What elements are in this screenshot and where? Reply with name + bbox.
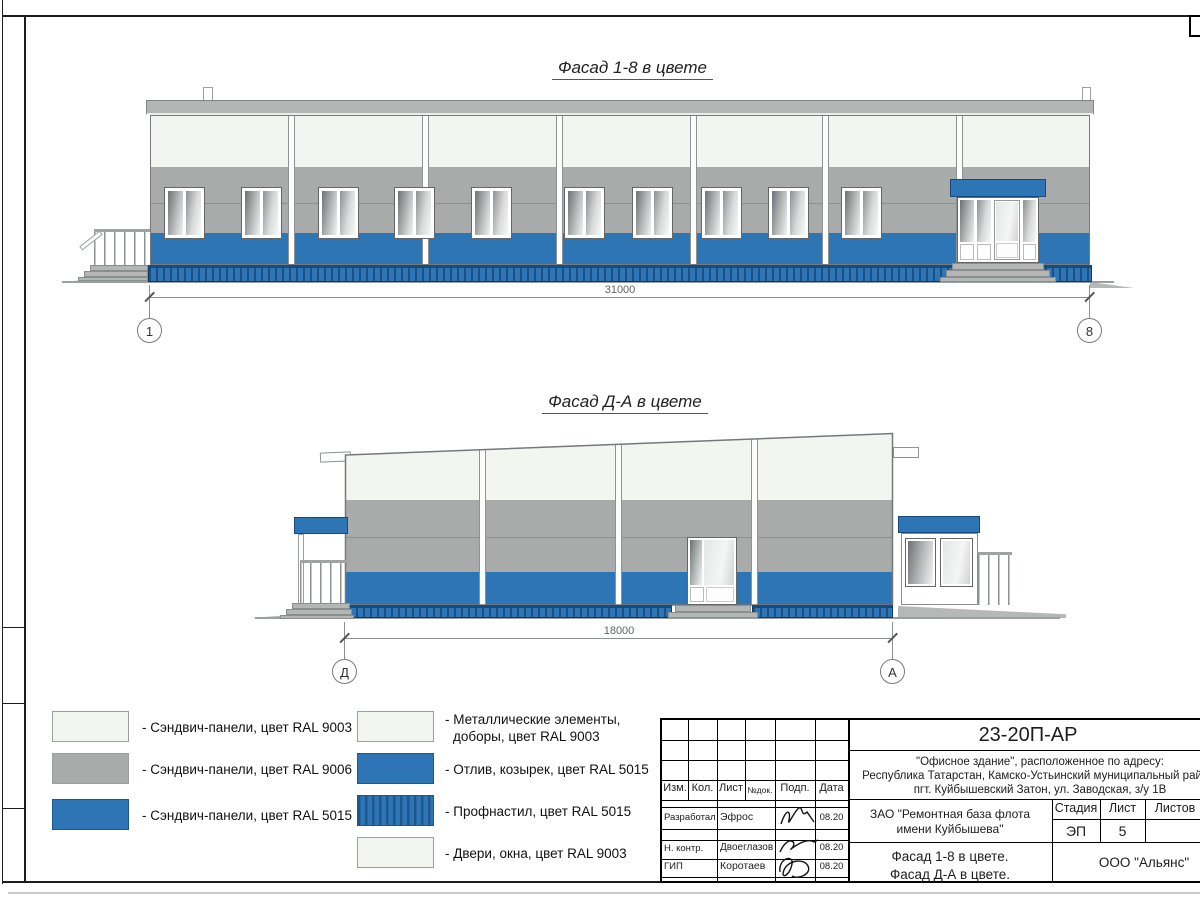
window — [564, 187, 605, 239]
tb-name: Коротаев — [720, 860, 778, 872]
tb-line — [1052, 819, 1200, 820]
frame-top — [2, 15, 1200, 17]
facade-column — [479, 433, 486, 605]
tb-name: Эфрос — [720, 811, 776, 823]
tb-col-ndok: №док. — [745, 785, 775, 795]
swatch-ral9006 — [52, 753, 129, 784]
frame-left — [24, 15, 26, 883]
window — [318, 187, 359, 239]
tb-role: ГИП — [664, 861, 718, 872]
swatch-ral9003 — [52, 711, 129, 742]
tb-line — [662, 780, 848, 781]
tb-date: 08.20 — [815, 812, 848, 823]
axis-bubble-a: А — [880, 659, 905, 684]
signature — [774, 832, 822, 882]
door-step — [668, 612, 758, 618]
extension-line — [1089, 285, 1090, 320]
parapet — [146, 100, 1094, 115]
swatch-metal-ral9003 — [357, 711, 434, 742]
tb-line — [848, 750, 1200, 751]
facade-da-title: Фасад Д-А в цвете — [470, 392, 780, 412]
tb-content: Фасад 1-8 в цвете. Фасад Д-А в цвете. — [850, 848, 1050, 884]
window — [841, 187, 882, 239]
dimension-line — [345, 638, 893, 639]
legend-label: - Металлические элементы, доборы, цвет R… — [445, 711, 620, 745]
sheet-edge-left — [2, 0, 3, 884]
facade-column — [615, 433, 622, 605]
corner-box — [1189, 15, 1200, 37]
dimension-line — [150, 297, 1090, 298]
stairs-railing — [94, 229, 150, 268]
axis-bubble-d: Д — [332, 659, 357, 684]
annex-body — [901, 533, 978, 605]
window — [394, 187, 435, 239]
entrance-door — [687, 537, 737, 605]
porch-canopy — [294, 517, 348, 534]
extension-line — [149, 285, 150, 320]
entrance-step — [946, 270, 1050, 277]
facade-column — [690, 116, 697, 264]
swatch-otliv-ral5015 — [357, 753, 434, 784]
facade-wall — [345, 433, 893, 605]
tb-role: Н. контр. — [664, 843, 718, 854]
porch-step — [280, 615, 354, 619]
stairs-step — [78, 277, 148, 281]
entrance-step — [940, 277, 1056, 282]
facade-wall — [150, 115, 1090, 265]
dimension-value: 18000 — [559, 625, 679, 637]
annex-canopy — [898, 516, 980, 533]
tb-line — [848, 799, 1200, 800]
facade-column — [288, 116, 295, 264]
tb-sheet-label: Лист — [1100, 801, 1145, 815]
annex-railing — [978, 552, 1012, 605]
tb-stage-value: ЭП — [1052, 823, 1100, 839]
plinth-profnastil — [348, 605, 672, 618]
entrance-canopy — [950, 179, 1046, 197]
window — [164, 187, 205, 239]
drawing-sheet: { "facade1": { "title": "Фасад 1-8 в цве… — [0, 0, 1200, 900]
legend-label: - Профнастил, цвет RAL 5015 — [445, 803, 631, 820]
tb-company: ООО "Альянс" — [1054, 855, 1200, 870]
signature — [777, 802, 817, 830]
porch-railing — [300, 560, 348, 607]
legend-label: - Отлив, козырек, цвет RAL 5015 — [445, 761, 649, 778]
tb-sheet-value: 5 — [1100, 823, 1145, 839]
margin-divider — [2, 703, 24, 704]
window — [632, 187, 673, 239]
margin-divider — [2, 808, 24, 809]
extension-line — [892, 622, 893, 659]
swatch-doors-ral9003 — [357, 837, 434, 868]
tb-doc-number: 23-20П-АР — [848, 724, 1200, 747]
dimension-value: 31000 — [560, 284, 680, 296]
tb-project-address: "Офисное здание", расположенное по адрес… — [850, 755, 1200, 797]
tb-col-podp: Подп. — [775, 782, 815, 794]
axis-bubble-1: 1 — [137, 318, 162, 343]
window — [701, 187, 742, 239]
legend-label: - Сэндвич-панели, цвет RAL 9006 — [142, 761, 352, 778]
door-step — [675, 605, 751, 612]
tb-line — [848, 842, 1200, 843]
legend-label: - Сэндвич-панели, цвет RAL 5015 — [142, 807, 352, 824]
tb-role: Разработал — [664, 812, 718, 823]
margin-divider — [2, 627, 24, 628]
entrance-step — [952, 263, 1044, 270]
facade-column — [822, 116, 829, 264]
facade-column — [556, 116, 563, 264]
axis-bubble-8: 8 — [1077, 318, 1102, 343]
tb-line — [662, 760, 848, 761]
extension-line — [344, 622, 345, 659]
plinth-profnastil — [752, 605, 893, 618]
tb-client: ЗАО "Ремонтная база флота имени Куйбышев… — [850, 807, 1050, 837]
window — [241, 187, 282, 239]
title-block: Изм. Кол. Лист №док. Подп. Дата Разработ… — [660, 718, 1200, 883]
tb-col-kol: Кол. — [688, 782, 717, 794]
entrance-glazing — [957, 197, 1039, 263]
window — [768, 187, 809, 239]
annex-window — [905, 538, 936, 587]
tb-col-data: Дата — [815, 782, 848, 794]
tb-stage-label: Стадия — [1052, 801, 1100, 815]
sheet-shadow — [8, 892, 1200, 894]
tb-line — [662, 807, 848, 808]
tb-sheets-label: Листов — [1145, 801, 1200, 815]
tb-line — [662, 740, 848, 741]
swatch-ral5015 — [52, 799, 129, 830]
legend-label: - Сэндвич-панели, цвет RAL 9003 — [142, 719, 352, 736]
swatch-profnastil — [357, 795, 434, 826]
facade-1-8-title: Фасад 1-8 в цвете — [480, 58, 785, 78]
ground-wedge-right — [898, 603, 1066, 618]
tb-col-izm: Изм. — [662, 782, 688, 794]
tb-line — [662, 800, 848, 801]
legend-label: - Двери, окна, цвет RAL 9003 — [445, 845, 627, 862]
tb-line — [662, 829, 848, 830]
tb-name: Двоеглазов — [720, 842, 778, 853]
roof-eave-right — [893, 447, 919, 458]
annex-window — [940, 538, 973, 587]
window — [471, 187, 512, 239]
facade-column — [751, 433, 758, 605]
tb-col-list: Лист — [717, 782, 745, 794]
